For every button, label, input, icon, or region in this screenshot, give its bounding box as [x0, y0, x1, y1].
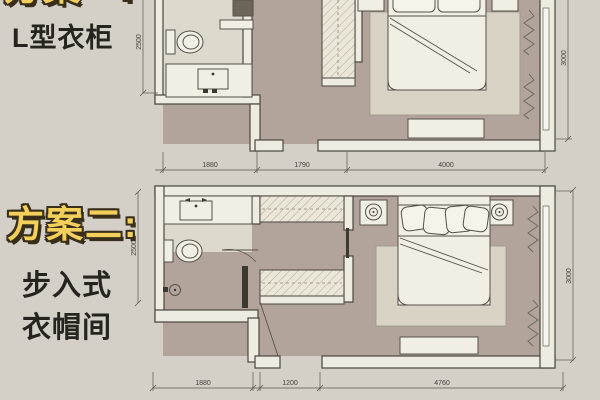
scheme-2-subtitle-line2: 衣帽间 [22, 313, 112, 343]
dim-label: 4000 [438, 162, 454, 169]
scheme-1-subtitle: L型衣柜 [12, 24, 114, 52]
dim-label: 1880 [202, 162, 218, 169]
dim-label: 3000 [566, 268, 573, 284]
nightstand-left [358, 0, 384, 11]
dim-label: 1200 [282, 380, 298, 387]
dim-label: 2500 [136, 34, 143, 50]
floor-plan-scheme-1 [155, 0, 555, 151]
pillows [400, 204, 489, 235]
pillow [438, 0, 480, 12]
shelf [220, 20, 253, 29]
l-wardrobe [322, 0, 355, 86]
dim-label: 1880 [195, 380, 211, 387]
toilet-icon [164, 240, 202, 262]
floor-plan-scheme-2 [155, 186, 555, 368]
headboard [398, 196, 490, 205]
dim-label: 1790 [294, 162, 310, 169]
scheme-2-subtitle-line1: 步入式 [22, 271, 112, 301]
nightstand-left [360, 200, 387, 225]
toilet-icon [166, 30, 203, 54]
closet-door-leaf [346, 228, 349, 258]
scheme-1-title: 方案一: [4, 0, 135, 8]
scheme-2-title: 方案二: [7, 206, 138, 245]
dim-label: 3000 [561, 50, 568, 66]
nightstand-right [492, 0, 518, 11]
sink-counter [164, 196, 252, 224]
pillow [393, 0, 435, 12]
shower-glass [242, 266, 248, 308]
bench [408, 119, 484, 138]
dim-label: 4760 [434, 380, 450, 387]
mirror-cabinet [233, 0, 253, 16]
window [543, 206, 549, 346]
window [543, 8, 549, 130]
sink-counter [166, 64, 252, 97]
infographic-canvas: 1880 1790 4000 2500 3000 [0, 0, 600, 400]
bench [400, 337, 478, 354]
